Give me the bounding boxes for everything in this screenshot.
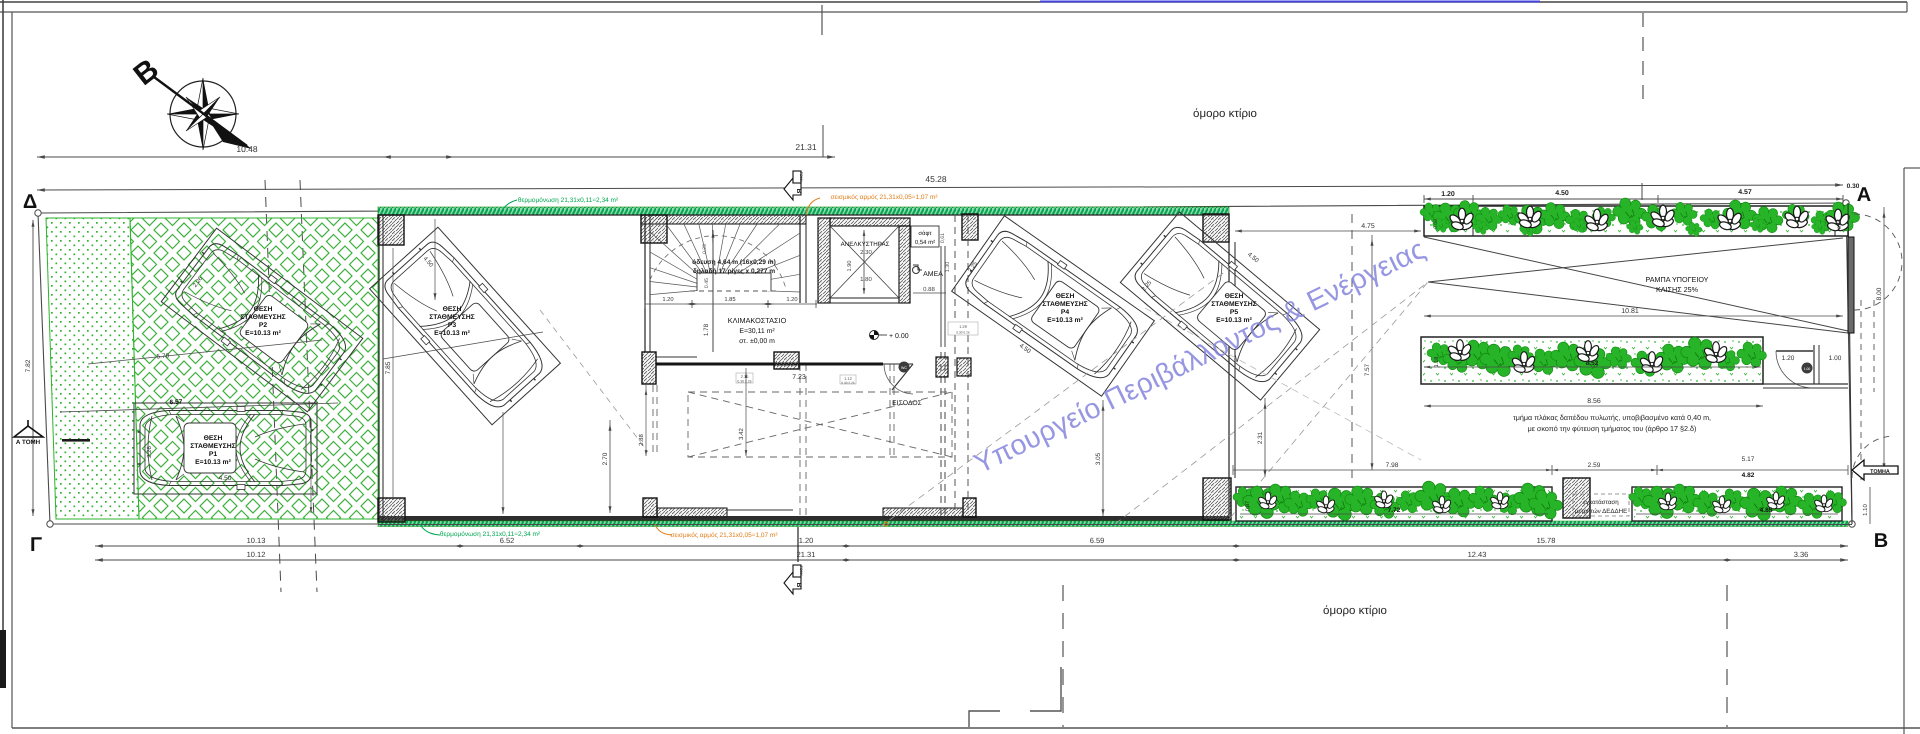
svg-text:4.75: 4.75: [1361, 223, 1375, 230]
svg-text:1.20: 1.20: [1441, 191, 1455, 198]
svg-text:ΑΜΕΑ: ΑΜΕΑ: [923, 271, 943, 278]
svg-text:4.50: 4.50: [422, 255, 435, 269]
svg-text:Γ: Γ: [30, 534, 42, 556]
svg-text:2.31: 2.31: [1257, 431, 1264, 444]
svg-text:ΕΙΣΟΔΟΣ: ΕΙΣΟΔΟΣ: [892, 400, 922, 407]
svg-text:0.60: 0.60: [1433, 219, 1439, 229]
svg-text:1.20: 1.20: [786, 296, 797, 303]
svg-text:P3: P3: [448, 322, 457, 329]
svg-text:εγκατάσταση: εγκατάσταση: [1583, 499, 1619, 506]
svg-text:10.12: 10.12: [247, 550, 266, 559]
svg-text:μετρητών ΔΕΔΔΗΕ: μετρητών ΔΕΔΔΗΕ: [1575, 508, 1628, 515]
svg-text:B: B: [128, 53, 165, 92]
svg-text:ΘΕΣΗ: ΘΕΣΗ: [443, 306, 462, 313]
svg-text:2.70: 2.70: [741, 374, 750, 379]
svg-text:1.10: 1.10: [1862, 504, 1869, 516]
svg-text:WC: WC: [901, 366, 907, 370]
svg-text:P5: P5: [1230, 309, 1239, 316]
svg-text:με σκοπό την φύτευση τμήματος: με σκοπό την φύτευση τμήματος του (άρθρο…: [1528, 424, 1697, 433]
svg-text:21.31: 21.31: [797, 550, 816, 559]
svg-text:0.45: 0.45: [704, 278, 710, 288]
svg-text:P4: P4: [1061, 309, 1070, 316]
svg-text:10.48: 10.48: [236, 144, 258, 154]
svg-text:4.50: 4.50: [1246, 251, 1260, 265]
svg-text:E=10.13 m²: E=10.13 m²: [195, 459, 231, 466]
svg-text:7.23: 7.23: [792, 374, 806, 381]
svg-text:E=10.13 m²: E=10.13 m²: [1047, 317, 1083, 324]
svg-text:1.18: 1.18: [1434, 357, 1440, 368]
svg-text:3.36: 3.36: [1794, 550, 1809, 559]
svg-text:2.88: 2.88: [638, 434, 645, 446]
svg-text:ΑΝΕΛΚΥΣΤΗΡΑΣ: ΑΝΕΛΚΥΣΤΗΡΑΣ: [841, 241, 890, 248]
svg-text:10.13: 10.13: [247, 536, 266, 545]
svg-text:P1: P1: [209, 451, 218, 458]
svg-text:ΣΤΑΘΜΕΥΣΗΣ: ΣΤΑΘΜΕΥΣΗΣ: [190, 443, 236, 450]
svg-text:4.50: 4.50: [1018, 342, 1032, 355]
svg-text:ΣΤΑΘΜΕΥΣΗΣ: ΣΤΑΘΜΕΥΣΗΣ: [429, 314, 475, 321]
svg-text:3.05: 3.05: [1095, 452, 1102, 465]
svg-text:7.85: 7.85: [385, 361, 392, 374]
svg-text:10.81: 10.81: [1621, 308, 1639, 315]
svg-text:ΚΛΙΜΑΚΟΣΤΑΣΙΟ: ΚΛΙΜΑΚΟΣΤΑΣΙΟ: [728, 316, 787, 325]
svg-text:ΘΕΣΗ: ΘΕΣΗ: [1225, 293, 1244, 300]
svg-text:12.43: 12.43: [1468, 550, 1487, 559]
svg-text:1.20: 1.20: [799, 536, 814, 545]
svg-text:σάφτ: σάφτ: [918, 230, 932, 237]
svg-text:4.85: 4.85: [1760, 507, 1773, 514]
svg-text:0.30: 0.30: [1847, 183, 1860, 190]
svg-text:θερμομόνωση 21,31x0,11=2,34 m²: θερμομόνωση 21,31x0,11=2,34 m²: [518, 197, 619, 204]
svg-text:ΤΟΜΗ: ΤΟΜΗ: [799, 172, 803, 183]
svg-text:2.59: 2.59: [1588, 462, 1601, 469]
svg-text:Δ: Δ: [23, 191, 37, 213]
svg-text:ΡΑΜΠΑ ΥΠΟΓΕΙΟΥ: ΡΑΜΠΑ ΥΠΟΓΕΙΟΥ: [1646, 275, 1709, 284]
svg-text:8.56: 8.56: [1587, 398, 1601, 405]
svg-text:5.17: 5.17: [1742, 456, 1755, 463]
svg-text:1.20: 1.20: [662, 296, 673, 303]
svg-text:Α ΤΟΜΗ: Α ΤΟΜΗ: [16, 439, 41, 446]
svg-text:όδευση 4,64 m (16x0,29 m): όδευση 4,64 m (16x0,29 m): [692, 259, 776, 266]
svg-text:θερμομόνωση 21,31x0,11=2,34 m²: θερμομόνωση 21,31x0,11=2,34 m²: [440, 531, 541, 538]
svg-text:4.82: 4.82: [1742, 472, 1755, 479]
svg-text:7.57: 7.57: [1364, 363, 1371, 376]
svg-text:1.00: 1.00: [1804, 367, 1811, 371]
svg-text:1.20: 1.20: [1782, 355, 1795, 362]
svg-text:1.78: 1.78: [703, 323, 710, 336]
svg-text:ΣΤΑΘΜΕΥΣΗΣ: ΣΤΑΘΜΕΥΣΗΣ: [1042, 301, 1088, 308]
svg-text:6.59: 6.59: [1090, 536, 1105, 545]
svg-text:0.30 2.26: 0.30 2.26: [737, 380, 751, 384]
svg-text:1.90: 1.90: [847, 261, 853, 272]
svg-text:τμήμα πλάκας δαπέδου πυλωτής,: τμήμα πλάκας δαπέδου πυλωτής, υποβιβασμέ…: [1513, 413, 1711, 422]
svg-text:4.50: 4.50: [219, 475, 232, 482]
svg-text:ΘΕΣΗ: ΘΕΣΗ: [254, 306, 273, 313]
svg-text:0.30 2.26: 0.30 2.26: [841, 381, 855, 385]
svg-text:1.80: 1.80: [860, 276, 872, 283]
svg-text:7.72: 7.72: [1388, 507, 1401, 514]
svg-text:1.85: 1.85: [724, 296, 735, 303]
svg-text:7.98: 7.98: [1386, 462, 1399, 469]
svg-text:όμορο κτίριο: όμορο κτίριο: [1323, 605, 1387, 617]
svg-text:E=10.13 m²: E=10.13 m²: [245, 330, 281, 337]
svg-text:Β: Β: [795, 583, 802, 588]
svg-text:0,61: 0,61: [940, 233, 946, 243]
svg-text:ΣΤΑΘΜΕΥΣΗΣ: ΣΤΑΘΜΕΥΣΗΣ: [240, 314, 286, 321]
svg-text:ΘΕΣΗ: ΘΕΣΗ: [204, 435, 223, 442]
svg-text:ΚΛΙΣΗΣ 25%: ΚΛΙΣΗΣ 25%: [1656, 285, 1699, 294]
svg-text:45.28: 45.28: [925, 174, 947, 184]
svg-text:όμορο κτίριο: όμορο κτίριο: [1193, 108, 1257, 120]
svg-text:7.82: 7.82: [25, 359, 32, 372]
svg-text:15.78: 15.78: [1537, 536, 1556, 545]
svg-text:1.30: 1.30: [945, 262, 951, 273]
svg-text:B: B: [1874, 530, 1888, 552]
svg-text:P2: P2: [259, 322, 268, 329]
svg-text:3.42: 3.42: [738, 428, 745, 440]
svg-text:+ 0.00: + 0.00: [889, 333, 909, 340]
svg-text:ΣΤΑΘΜΕΥΣΗΣ: ΣΤΑΘΜΕΥΣΗΣ: [1211, 301, 1257, 308]
svg-text:E=30,11 m²: E=30,11 m²: [739, 328, 775, 335]
svg-text:0.88: 0.88: [923, 286, 935, 293]
svg-text:0.87: 0.87: [1245, 501, 1251, 511]
svg-text:4.50: 4.50: [1555, 190, 1569, 197]
svg-text:8.00: 8.00: [1876, 287, 1883, 300]
svg-text:5.70: 5.70: [156, 353, 169, 361]
svg-text:ΘΕΣΗ: ΘΕΣΗ: [1056, 293, 1075, 300]
svg-text:0.30 0.26: 0.30 0.26: [956, 331, 970, 335]
svg-text:0,54 m²: 0,54 m²: [915, 239, 935, 246]
svg-text:6.57: 6.57: [170, 399, 183, 406]
svg-text:σεισμικός αρμός 21,31x0,05=1,0: σεισμικός αρμός 21,31x0,05=1,07 m²: [670, 532, 778, 539]
svg-text:0.65: 0.65: [1837, 219, 1843, 229]
svg-text:4.57: 4.57: [1738, 189, 1752, 196]
svg-text:σεισμικός αρμός 21,31x0,05=1,0: σεισμικός αρμός 21,31x0,05=1,07 m²: [830, 194, 938, 201]
svg-text:21.31: 21.31: [795, 142, 817, 152]
svg-text:2.26: 2.26: [146, 446, 153, 458]
svg-text:E=10.13 m²: E=10.13 m²: [434, 330, 470, 337]
svg-text:2.70: 2.70: [602, 452, 609, 465]
svg-text:Β: Β: [795, 189, 802, 194]
svg-text:1.29: 1.29: [959, 324, 968, 329]
svg-text:δηλαδή 17 ρίγες x 0,277 m: δηλαδή 17 ρίγες x 0,277 m: [693, 268, 775, 275]
svg-text:στ. ±0,00 m: στ. ±0,00 m: [739, 338, 775, 345]
svg-text:ΤΟΜΗ: ΤΟΜΗ: [799, 566, 803, 577]
svg-text:1.00: 1.00: [1829, 355, 1842, 362]
svg-text:8.52: 8.52: [1586, 360, 1599, 367]
svg-text:2.30: 2.30: [860, 249, 872, 256]
svg-text:0.29: 0.29: [702, 244, 708, 254]
svg-text:ΤΟΜΗΑ: ΤΟΜΗΑ: [1870, 469, 1890, 475]
